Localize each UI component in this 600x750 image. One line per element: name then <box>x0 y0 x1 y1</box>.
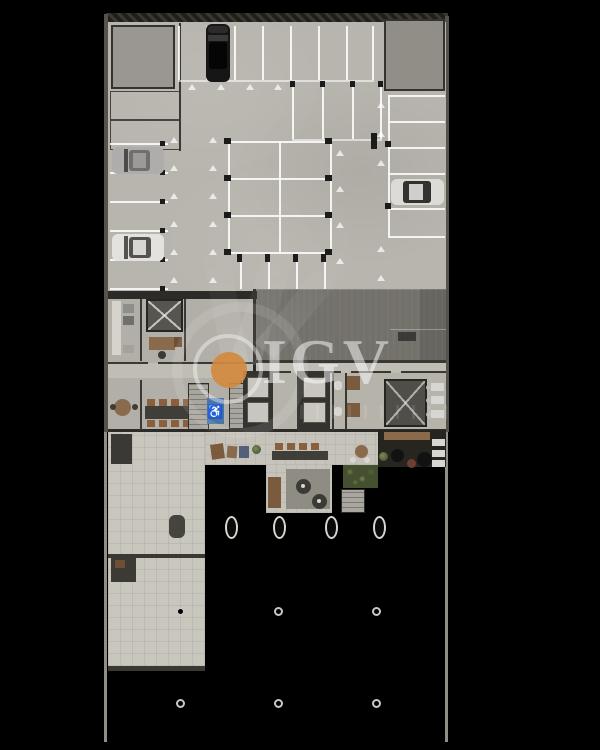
chair <box>147 420 155 427</box>
direction-arrow <box>336 222 344 228</box>
entry-stairs <box>341 489 365 513</box>
direction-arrow <box>170 193 178 199</box>
elevator-bank <box>299 371 330 432</box>
car-windshield <box>124 149 128 172</box>
interior-wall <box>255 360 446 363</box>
plant <box>379 452 388 461</box>
top-right-room <box>384 19 445 91</box>
column-post <box>325 175 332 181</box>
chair <box>426 412 431 417</box>
parking-line <box>388 95 445 97</box>
direction-arrow <box>170 137 178 143</box>
direction-arrow <box>377 246 385 252</box>
column-post <box>325 249 332 255</box>
storage-room <box>110 91 180 120</box>
car-windshield <box>124 236 128 259</box>
parking-line <box>388 121 445 123</box>
parking-line <box>388 173 445 175</box>
artwork-frame <box>239 446 249 458</box>
appliance <box>123 345 134 353</box>
direction-arrow <box>170 277 178 283</box>
parking-line <box>234 26 236 80</box>
desk <box>432 450 445 457</box>
car-hood <box>208 26 228 33</box>
direction-arrow <box>336 186 344 192</box>
slab-shadow <box>420 289 446 362</box>
direction-arrow <box>188 84 196 90</box>
direction-arrow <box>209 137 217 143</box>
column-post <box>320 81 325 87</box>
bathroom-vanity <box>347 403 360 417</box>
dark-slab-area <box>255 289 446 363</box>
elevator-cab <box>303 402 326 423</box>
parking-line <box>178 26 180 80</box>
elevator-shaft-x <box>384 379 427 427</box>
table-setting <box>317 499 321 503</box>
coworking-counter <box>272 451 328 460</box>
direction-arrow <box>246 84 254 90</box>
direction-arrow <box>209 165 217 171</box>
parking-line <box>388 95 390 236</box>
desk <box>431 383 444 391</box>
car-roof <box>409 184 423 200</box>
parking-line <box>330 141 332 253</box>
terrace-cabinet <box>111 434 132 464</box>
chair <box>171 420 179 427</box>
round-table <box>114 399 131 416</box>
column-post <box>224 175 231 181</box>
parking-line <box>388 208 445 210</box>
desk <box>432 439 445 446</box>
car-roof <box>133 240 146 255</box>
car-roof <box>133 153 146 168</box>
black-suv-car <box>206 24 230 82</box>
direction-arrow <box>377 160 385 166</box>
desk <box>432 460 445 467</box>
direction-arrow <box>377 131 385 137</box>
round-column <box>372 699 381 708</box>
parking-line <box>228 141 330 143</box>
stool <box>275 443 283 450</box>
chair <box>159 420 167 427</box>
parking-line <box>318 26 320 80</box>
artwork-frame <box>226 446 237 459</box>
parking-line <box>322 84 324 139</box>
storage-room <box>110 120 180 150</box>
car-windshield <box>208 35 228 41</box>
top-left-room <box>111 25 175 89</box>
parking-line <box>228 252 330 254</box>
direction-arrow <box>336 150 344 156</box>
table-setting <box>301 484 305 488</box>
direction-arrow <box>377 275 385 281</box>
interior-wall <box>140 380 142 430</box>
oval-pillar <box>225 516 238 539</box>
office-chair <box>158 351 166 359</box>
column-post <box>378 81 383 87</box>
stool <box>287 443 295 450</box>
silver-car <box>112 147 164 174</box>
handicap-parking-icon: ♿ <box>207 398 224 424</box>
parking-line <box>352 84 354 139</box>
interior-wall <box>351 371 391 373</box>
parking-line <box>292 84 294 139</box>
chair <box>110 404 116 410</box>
column-post <box>224 249 231 255</box>
chair <box>147 399 155 406</box>
ac-unit <box>398 332 416 341</box>
column-post <box>237 254 242 262</box>
round-column <box>176 699 185 708</box>
parking-line <box>279 141 281 253</box>
desk <box>431 396 444 404</box>
toilet <box>334 407 342 416</box>
car-roof <box>209 42 227 69</box>
elevator-bank <box>243 371 273 432</box>
stool <box>311 443 319 450</box>
column-post <box>224 212 231 218</box>
bathroom-vanity <box>347 376 360 390</box>
direction-arrow <box>170 221 178 227</box>
desk <box>431 410 444 418</box>
artwork-frame <box>210 443 225 460</box>
pouf-red <box>407 459 416 468</box>
pouf <box>417 452 432 467</box>
stairs <box>188 383 209 430</box>
parking-line <box>262 26 264 80</box>
chair <box>426 385 431 390</box>
column-post <box>160 141 165 146</box>
outdoor-lounge <box>378 430 446 467</box>
terrace-south-wall <box>108 666 205 671</box>
direction-arrow <box>170 165 178 171</box>
column-post <box>321 254 326 262</box>
office-desk <box>149 337 175 350</box>
interior-wall <box>140 299 142 361</box>
direction-arrow <box>170 249 178 255</box>
side-table <box>174 337 182 347</box>
parking-line <box>388 147 445 149</box>
white-car-right <box>391 179 444 205</box>
column-post <box>325 212 332 218</box>
column-post <box>290 81 295 87</box>
parking-line <box>372 26 374 80</box>
direction-arrow <box>209 277 217 283</box>
column-post <box>350 81 355 87</box>
interior-wall <box>158 362 255 364</box>
direction-arrow <box>377 102 385 108</box>
green-wall <box>343 465 378 488</box>
round-column <box>176 607 185 616</box>
chair <box>132 404 138 410</box>
direction-arrow <box>209 193 217 199</box>
plant <box>252 445 261 454</box>
parking-line <box>228 178 330 180</box>
direction-arrow <box>209 249 217 255</box>
round-column <box>274 607 283 616</box>
parking-line <box>346 26 348 80</box>
appliance <box>123 304 134 313</box>
white-car <box>112 234 164 261</box>
parking-line <box>290 26 292 80</box>
parking-line <box>228 141 230 253</box>
right-exterior-wall-lower <box>445 432 448 742</box>
stool <box>299 443 307 450</box>
column-post <box>293 254 298 262</box>
direction-arrow <box>274 84 282 90</box>
direction-arrow <box>209 221 217 227</box>
chair <box>426 398 431 403</box>
stool <box>364 457 370 463</box>
pouf <box>391 449 404 462</box>
appliance <box>123 316 134 325</box>
floor-plan-render: ♿ <box>0 0 600 750</box>
column-post <box>385 203 391 209</box>
oval-pillar <box>325 516 338 539</box>
interior-wall <box>401 371 446 373</box>
terrace-desk-top <box>115 560 125 568</box>
column-post <box>385 141 391 147</box>
column-post <box>265 254 270 262</box>
bar-cabinet <box>268 477 281 508</box>
oval-pillar <box>373 516 386 539</box>
round-column <box>372 607 381 616</box>
elevator-cab <box>303 377 326 398</box>
column-post <box>325 138 332 144</box>
round-column <box>274 699 283 708</box>
stool <box>350 457 356 463</box>
oval-pillar <box>273 516 286 539</box>
interior-wall <box>108 362 148 364</box>
interior-wall <box>332 371 334 431</box>
column-post <box>160 199 165 204</box>
column-post <box>224 138 231 144</box>
kitchen-counter <box>112 301 121 355</box>
elevator-cab <box>247 402 269 423</box>
garage-lobby-wall <box>108 291 257 299</box>
parking-line <box>228 215 330 217</box>
left-exterior-wall-lower <box>104 432 107 742</box>
column-post <box>160 228 165 233</box>
handicap-glyph: ♿ <box>207 405 223 418</box>
stair-shaft-x <box>146 299 183 332</box>
interior-wall <box>184 299 186 361</box>
lounge-counter <box>384 432 430 440</box>
chair <box>159 399 167 406</box>
elevator-cab <box>247 377 269 398</box>
direction-arrow <box>217 84 225 90</box>
chair <box>171 399 179 406</box>
parking-line <box>388 236 445 238</box>
slab-line <box>390 329 446 330</box>
toilet <box>334 381 342 390</box>
direction-arrow <box>336 258 344 264</box>
bench <box>169 515 185 538</box>
